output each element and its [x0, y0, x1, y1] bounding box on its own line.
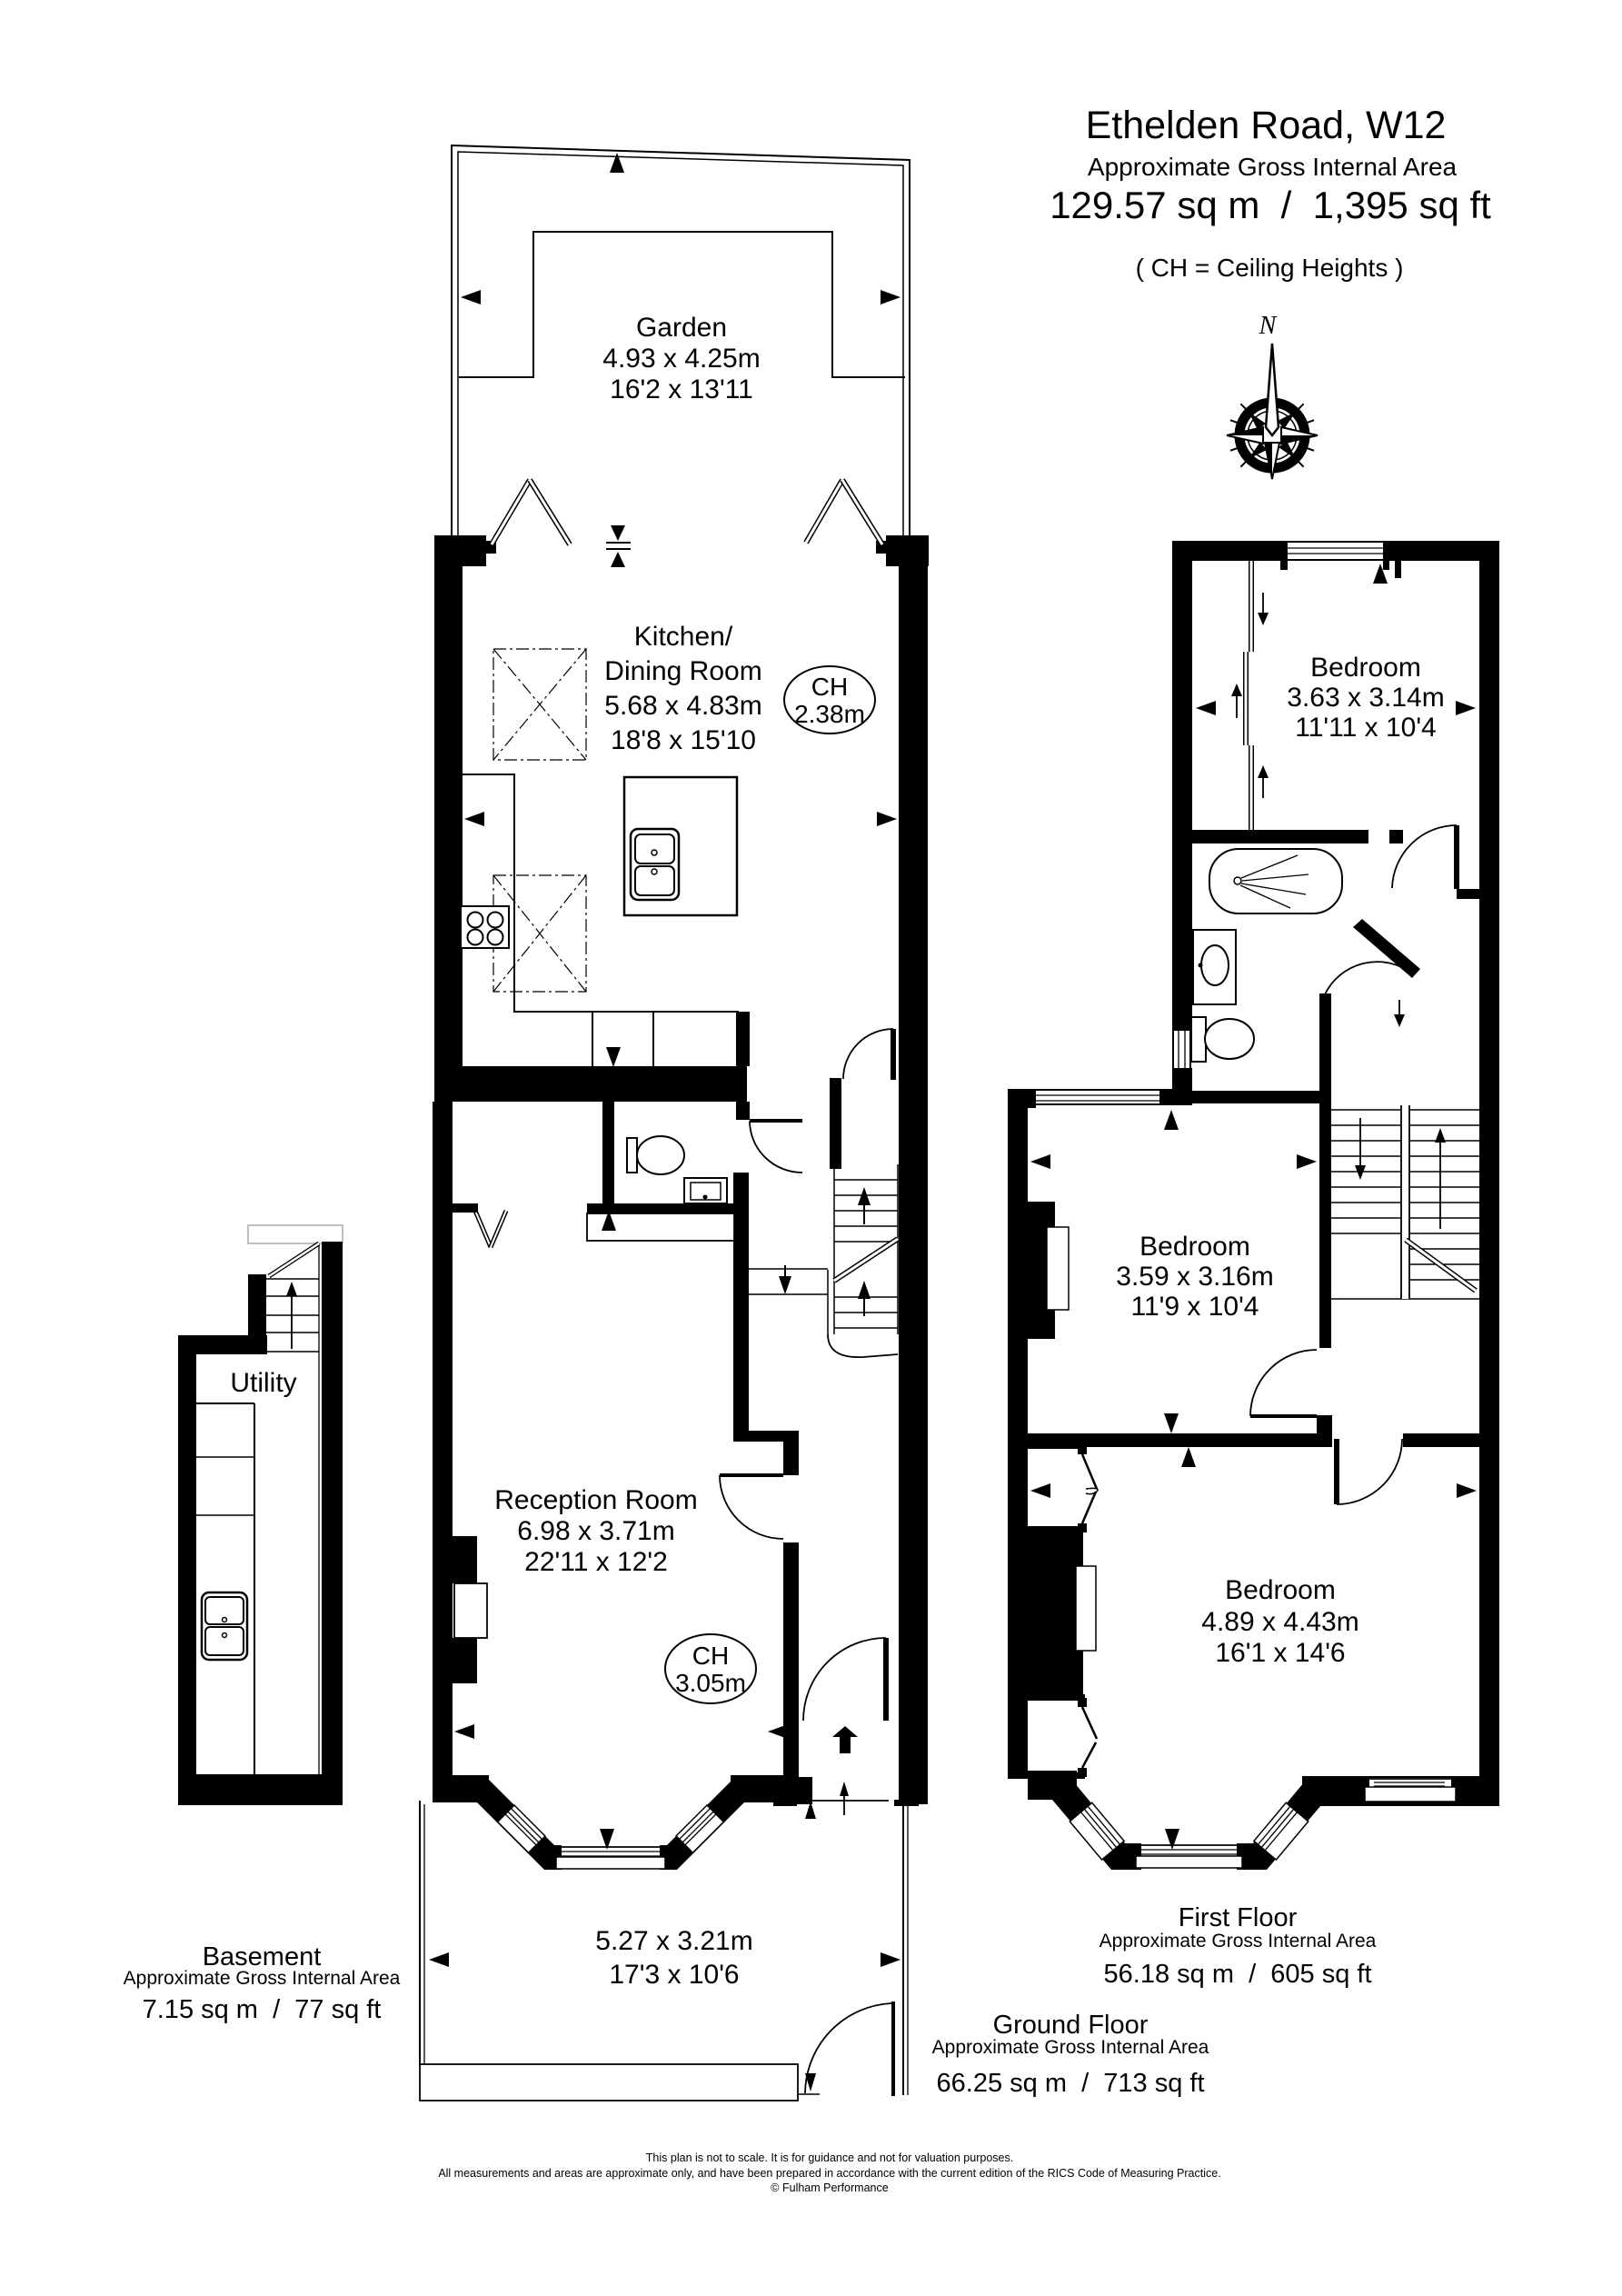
svg-text:Approximate Gross Internal Are: Approximate Gross Internal Area [1088, 153, 1458, 181]
svg-text:This plan is not to scale. It: This plan is not to scale. It is for gui… [646, 2151, 1013, 2164]
svg-text:7.15 sq m / 77 sq ft: 7.15 sq m / 77 sq ft [143, 1995, 382, 2024]
svg-text:3.63 x 3.14m: 3.63 x 3.14m [1287, 683, 1444, 713]
svg-text:Bedroom: Bedroom [1225, 1575, 1336, 1605]
svg-text:First Floor: First Floor [1179, 1903, 1298, 1932]
svg-text:Bedroom: Bedroom [1310, 653, 1421, 683]
svg-text:Approximate Gross Internal Are: Approximate Gross Internal Area [124, 1968, 401, 1989]
svg-text:Reception Room: Reception Room [494, 1485, 697, 1515]
svg-text:4.89 x 4.43m: 4.89 x 4.43m [1201, 1607, 1358, 1637]
svg-text:All measurements and areas are: All measurements and areas are approxima… [438, 2167, 1220, 2180]
svg-text:Ethelden Road, W12: Ethelden Road, W12 [1086, 104, 1447, 147]
svg-text:( CH = Ceiling Heights ): ( CH = Ceiling Heights ) [1136, 254, 1404, 282]
svg-text:Approximate Gross Internal Are: Approximate Gross Internal Area [932, 2037, 1209, 2058]
svg-text:N: N [1259, 312, 1278, 340]
svg-text:18'8 x 15'10: 18'8 x 15'10 [611, 725, 756, 755]
svg-text:3.59 x 3.16m: 3.59 x 3.16m [1116, 1262, 1273, 1292]
svg-text:16'1 x 14'6: 16'1 x 14'6 [1215, 1638, 1345, 1668]
svg-text:Ground Floor: Ground Floor [993, 2011, 1149, 2040]
svg-text:2.38m: 2.38m [794, 700, 865, 728]
svg-text:Dining Room: Dining Room [604, 656, 761, 686]
svg-text:16'2 x 13'11: 16'2 x 13'11 [610, 374, 753, 404]
svg-text:5.68 x 4.83m: 5.68 x 4.83m [604, 691, 761, 721]
svg-text:CH: CH [811, 673, 848, 701]
svg-text:56.18 sq m / 605 sq ft: 56.18 sq m / 605 sq ft [1104, 1960, 1372, 1989]
svg-text:17'3 x 10'6: 17'3 x 10'6 [609, 1960, 739, 1990]
svg-text:22'11 x 12'2: 22'11 x 12'2 [524, 1547, 668, 1577]
svg-text:66.25 sq m / 713 sq ft: 66.25 sq m / 713 sq ft [937, 2069, 1205, 2098]
svg-text:129.57 sq m / 1,395 sq ft: 129.57 sq m / 1,395 sq ft [1050, 184, 1491, 226]
svg-text:11'9 x 10'4: 11'9 x 10'4 [1130, 1292, 1259, 1322]
svg-text:6.98 x 3.71m: 6.98 x 3.71m [517, 1516, 674, 1546]
svg-text:Utility: Utility [230, 1368, 296, 1398]
svg-text:Kitchen/: Kitchen/ [634, 622, 733, 652]
svg-text:Approximate Gross Internal Are: Approximate Gross Internal Area [1100, 1931, 1377, 1952]
svg-text:Garden: Garden [636, 313, 727, 343]
svg-text:4.93 x 4.25m: 4.93 x 4.25m [602, 344, 760, 374]
svg-text:Bedroom: Bedroom [1139, 1232, 1250, 1262]
svg-text:5.27 x 3.21m: 5.27 x 3.21m [595, 1926, 752, 1956]
svg-text:11'11 x 10'4: 11'11 x 10'4 [1295, 713, 1436, 743]
svg-text:© Fulham Performance: © Fulham Performance [771, 2181, 888, 2194]
svg-text:CH: CH [692, 1642, 729, 1670]
svg-text:3.05m: 3.05m [675, 1669, 746, 1697]
